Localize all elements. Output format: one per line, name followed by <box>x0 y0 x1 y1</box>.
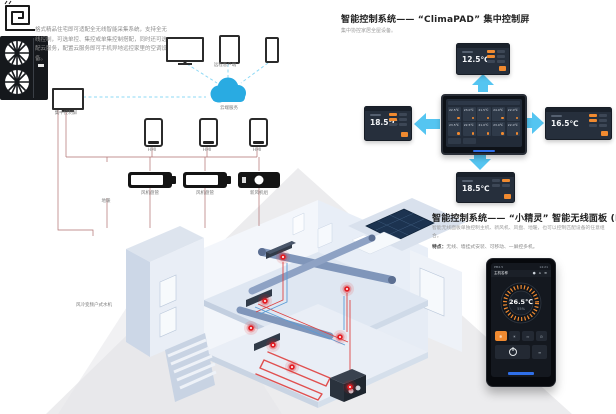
intro-paragraph: 格式精品住宅即可适配全无线智能采集系统，支持全无线控制，可选单控、集控或单集控制… <box>35 26 167 65</box>
screen-label-bar <box>462 180 473 182</box>
power-row: ≡ <box>495 345 547 359</box>
screen-temperature: 16.5℃ <box>551 119 579 128</box>
central-screen-icon <box>52 88 84 110</box>
features-label: 特点： <box>432 245 446 250</box>
mode-cool-icon: ❄ <box>495 331 507 341</box>
screen-buttons <box>389 113 407 126</box>
screen-buttons <box>487 50 505 63</box>
room-card: 22.0℃ <box>507 107 520 121</box>
screen-corner-button <box>601 131 608 136</box>
mode-auto-icon: ⊙ <box>536 331 548 341</box>
features-text: 无线、墙挂式安装、可移动、一屏控多机。 <box>446 245 537 250</box>
extra-cards <box>448 138 520 144</box>
fan-coil-icon-1 <box>128 172 172 188</box>
room-card: 21.5℃ <box>477 107 490 121</box>
climapad-main-tablet: 22.5℃ 23.0℃ 21.5℃ 24.0℃ 22.0℃ 23.5℃ 22.5… <box>441 94 527 155</box>
screen-buttons <box>589 114 607 127</box>
floor-heating-label: 地暖 <box>88 199 124 204</box>
climapad-screen-bottom: 18.5℃ <box>456 172 515 203</box>
fan-coil-label-1: 风机盘管 <box>128 191 172 196</box>
screen-label-bar <box>370 114 381 116</box>
hmi-panel-icon-3 <box>249 118 268 147</box>
room-card: 23.0℃ <box>463 107 476 121</box>
screen-label-bar <box>462 51 473 53</box>
remote-clients-label: 远程客户端 <box>193 63 257 68</box>
brand-logo <box>508 372 534 375</box>
hmi-screen: PM2.5 14:21 主机名称 ● ⌂ ≡ 26.5℃ 55% ❄ ☀ ≈ ⊙ <box>491 263 551 377</box>
screen-statusbar <box>546 108 611 112</box>
tv-client-icon <box>166 37 204 62</box>
room-card: 24.0℃ <box>492 107 505 121</box>
brand-logo <box>473 150 495 153</box>
tablet-topbar <box>448 101 520 105</box>
hmi-section-title: 智能控制系统—— “小精灵” 智能无线面板 (HMI) <box>432 211 616 224</box>
tablet-screen: 22.5℃ 23.0℃ 21.5℃ 24.0℃ 22.0℃ 23.5℃ 22.5… <box>446 99 522 147</box>
hmi-statusbar: PM2.5 14:21 <box>491 263 551 269</box>
cloud-label: 云端服务 <box>206 106 252 111</box>
pm25-label: PM2.5 <box>494 265 503 269</box>
infographic-canvas: 格式精品住宅即可适配全无线智能采集系统，支持全无线控制，可选单控、集控或单集控制… <box>0 0 616 414</box>
phone-client-icon <box>265 37 279 63</box>
central-screen-label: 集中控制屏 <box>40 111 92 116</box>
screen-corner-button <box>499 66 506 71</box>
hmi-panel-icon-1 <box>144 118 163 147</box>
room-card-grid: 22.5℃ 23.0℃ 21.5℃ 24.0℃ 22.0℃ 23.5℃ 22.5… <box>448 107 520 137</box>
climapad-screen-right: 16.5℃ <box>545 107 612 140</box>
arrow-up-icon <box>472 74 494 92</box>
hmi-label-2: HMI <box>194 148 220 153</box>
screen-statusbar <box>457 173 514 177</box>
climapad-section-subtitle: 集中协控家居全屋设备。 <box>341 27 396 34</box>
fan-coil-label-2: 风机盘管 <box>183 191 227 196</box>
mode-buttons: ❄ ☀ ≈ ⊙ <box>495 331 547 341</box>
fresh-air-label: 新风机组 <box>238 191 280 196</box>
hmi-section-description: 智能无线面板单独控制主机、新风机、风盘、地暖，也可以控制匹配设备的任意组合。 <box>432 225 614 240</box>
screen-corner-button <box>401 132 408 137</box>
cloud-icon <box>211 78 247 103</box>
room-card: 21.0℃ <box>477 122 490 136</box>
room-card: 22.0℃ <box>507 122 520 136</box>
hmi-section-features: 特点：无线、墙挂式安装、可移动、一屏控多机。 <box>432 243 614 250</box>
hmi-titlebar: 主机名称 ● ⌂ ≡ <box>491 270 551 277</box>
menu-button: ≡ <box>532 345 547 359</box>
outdoor-unit-label: 风冷变频户式水机 <box>56 303 132 308</box>
screen-temperature: 18.5℃ <box>462 184 490 193</box>
screen-corner-button <box>504 194 511 199</box>
tablet-client-icon <box>219 35 240 64</box>
hmi-label-3: HMI <box>244 148 270 153</box>
arrow-down-icon <box>469 153 491 170</box>
power-icon <box>509 348 517 356</box>
clock-label: 14:21 <box>539 265 548 269</box>
device-name-label: 主机名称 <box>494 271 508 276</box>
screen-statusbar <box>457 44 509 48</box>
screen-buttons <box>492 179 510 187</box>
status-icons: ● ⌂ ≡ <box>533 271 548 275</box>
power-button <box>495 345 530 359</box>
hmi-humidity: 55% <box>491 307 551 311</box>
climapad-screen-left: 18.5℃ <box>364 106 412 141</box>
fan-coil-icon-2 <box>183 172 227 188</box>
room-card: 22.5℃ <box>448 107 461 121</box>
room-card: 23.0℃ <box>492 122 505 136</box>
mode-heat-icon: ☀ <box>509 331 521 341</box>
room-card: 22.5℃ <box>463 122 476 136</box>
room-card: 23.5℃ <box>448 122 461 136</box>
fresh-air-unit-icon <box>238 172 280 188</box>
screen-statusbar <box>365 107 411 111</box>
screen-label-bar <box>551 115 562 117</box>
hmi-wireless-panel: PM2.5 14:21 主机名称 ● ⌂ ≡ 26.5℃ 55% ❄ ☀ ≈ ⊙ <box>486 258 556 387</box>
climapad-section-title: 智能控制系统—— “ClimaPAD” 集中控制屏 <box>341 12 530 25</box>
arrow-left-icon <box>414 113 440 135</box>
hmi-label-1: HMI <box>139 148 165 153</box>
hmi-panel-icon-2 <box>199 118 218 147</box>
mode-fan-icon: ≈ <box>522 331 534 341</box>
screen-temperature: 12.5℃ <box>462 55 490 64</box>
climapad-screen-top: 12.5℃ <box>456 43 510 75</box>
hmi-temperature: 26.5℃ <box>491 298 551 306</box>
